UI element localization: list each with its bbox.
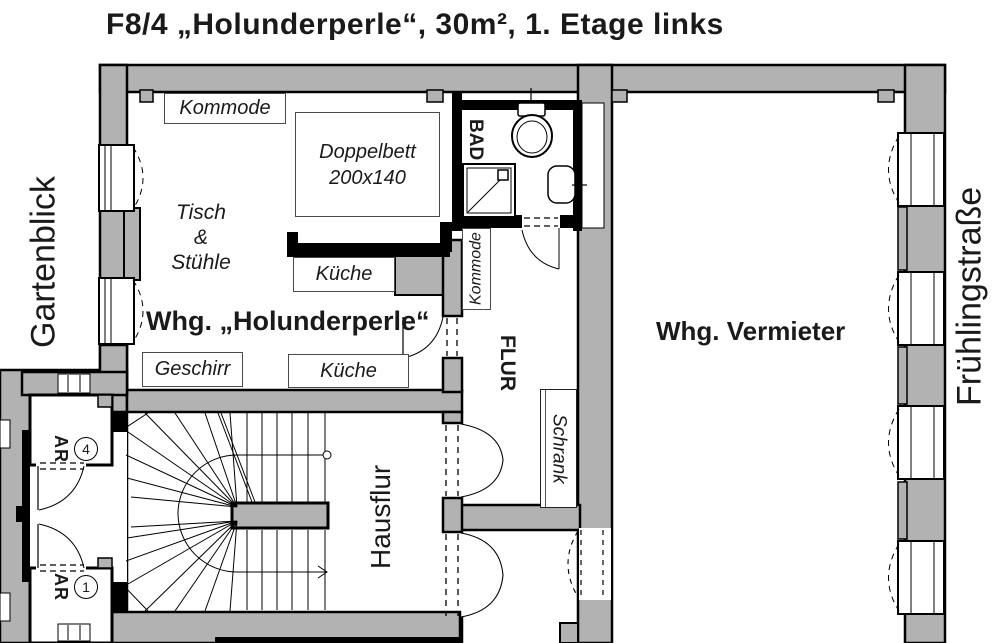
storage-label-ar4: AR 4 xyxy=(48,422,104,476)
window-left-1 xyxy=(99,145,134,211)
furniture-schrank: Schrank xyxy=(540,389,577,508)
window-right-2 xyxy=(898,272,944,345)
ar4-text: AR xyxy=(50,422,71,476)
double-door-lower xyxy=(461,533,503,617)
window-left-2 xyxy=(99,278,134,344)
floorplan-page: F8/4 „Holunderperle“, 30m², 1. Etage lin… xyxy=(0,0,1000,643)
furniture-kueche-lower: Küche xyxy=(288,354,409,388)
street-label-fruehlingstrasse: Frühlingstraße xyxy=(948,146,992,446)
bath-door-swing xyxy=(522,230,559,269)
tisch-amp: & xyxy=(146,225,256,250)
sink xyxy=(548,166,575,203)
tisch-label: Tisch xyxy=(146,200,256,225)
ar4-number-badge: 4 xyxy=(74,437,98,461)
bed-size: 200x140 xyxy=(329,165,406,191)
room-label-flur: FLUR xyxy=(491,331,523,395)
apartment-label-holunderperle: Whg. „Holunderperle“ xyxy=(146,306,430,337)
chimney-bottom xyxy=(58,624,90,641)
furniture-kommode-bedroom: Kommode xyxy=(164,93,286,124)
window-right-3 xyxy=(898,406,944,479)
walk-line-start xyxy=(323,451,331,459)
ar1-number-badge: 1 xyxy=(74,575,98,599)
double-door-upper xyxy=(461,424,503,497)
ar1-text: AR xyxy=(50,560,71,614)
room-label-hausflur: Hausflur xyxy=(360,446,402,588)
furniture-geschirr: Geschirr xyxy=(142,352,243,387)
apartment-label-vermieter: Whg. Vermieter xyxy=(656,316,845,347)
storage-label-ar1: AR 1 xyxy=(48,560,104,614)
street-label-gartenblick: Gartenblick xyxy=(24,136,64,388)
page-title: F8/4 „Holunderperle“, 30m², 1. Etage lin… xyxy=(106,8,724,42)
vestibule-door-swing xyxy=(568,531,578,597)
room-label-bad: BAD xyxy=(461,108,489,172)
window-right-4 xyxy=(898,541,944,614)
furniture-tisch-stuehle: Tisch & Stühle xyxy=(146,200,256,275)
bed-label: Doppelbett xyxy=(319,139,416,165)
stuehle-label: Stühle xyxy=(146,250,256,275)
furniture-kueche-upper: Küche xyxy=(293,257,395,292)
furniture-kommode-flur: Kommode xyxy=(462,228,491,310)
furniture-doppelbett: Doppelbett 200x140 xyxy=(295,112,440,217)
window-right-1 xyxy=(898,133,944,206)
